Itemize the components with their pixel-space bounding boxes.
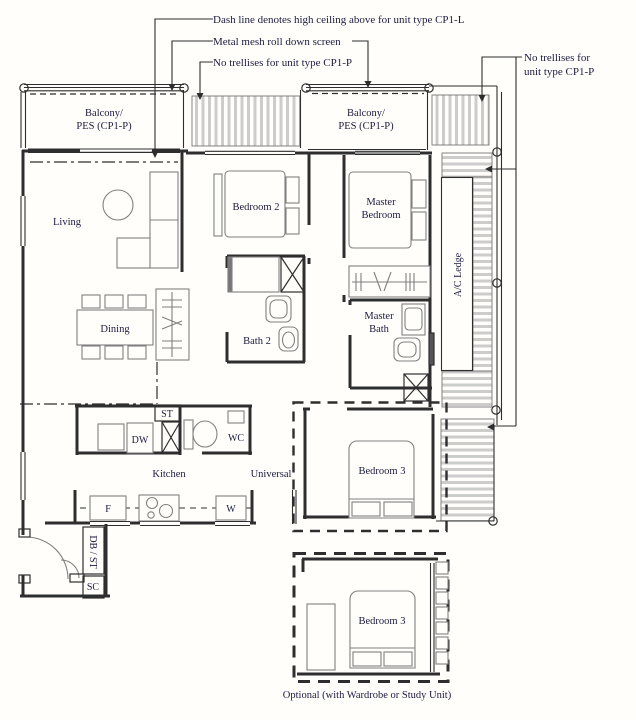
label-kitchen: Kitchen [152,469,186,480]
arrow-high-ceiling [152,151,159,158]
label-shoe-cabinet: SC [87,582,100,593]
label-balcony-left-1: Balcony/ [85,108,123,119]
label-living: Living [53,217,82,228]
label-bedroom3-optional: Bedroom 3 [359,616,406,627]
coffee-table [103,190,133,220]
shaft-bath2 [281,257,304,292]
label-master-bath-2: Bath [369,324,390,335]
note-metal-mesh: Metal mesh roll down screen [213,36,341,48]
label-balcony-right-1: Balcony/ [347,108,385,119]
shaft-kitchen [162,422,180,453]
floor-plan-drawing: Dash line denotes high ceiling above for… [0,0,636,720]
caption-optional: Optional (with Wardrobe or Study Unit) [283,690,452,701]
floor-plan-page: Dash line denotes high ceiling above for… [0,0,636,720]
wc-cistern [184,420,193,449]
note-no-trellises-right-line1: No trellises for [524,52,590,64]
entrance-door-arc [26,537,68,579]
label-master-2: Bedroom [361,210,400,221]
label-ac-ledge: A/C Ledge [453,252,464,297]
label-dining: Dining [100,324,130,335]
label-db-store: DB / ST [87,535,98,568]
bath2-vanity [228,257,279,292]
note-no-trellises-right-line2: unit type CP1-P [524,66,594,78]
metal-mesh-dash-line [30,94,424,95]
shafts-and-boxes [19,257,434,598]
label-bedroom2: Bedroom 2 [233,202,280,213]
label-universal: Universal [251,469,292,480]
note-no-trellises-left: No trellises for unit type CP1-P [213,57,352,69]
label-balcony-right-2: PES (CP1-P) [338,121,394,132]
kitchen-sink [98,424,124,450]
optional-wardrobe-study [307,604,335,670]
label-washer: W [226,504,236,515]
label-master-1: Master [366,197,396,208]
sofa-chaise [117,238,150,268]
label-dishwasher: DW [132,435,149,446]
label-master-bath-1: Master [364,311,394,322]
label-balcony-left-2: PES (CP1-P) [76,121,132,132]
label-wc: WC [228,433,244,444]
note-high-ceiling: Dash line denotes high ceiling above for… [213,14,465,26]
label-bedroom3: Bedroom 3 [359,466,406,477]
label-fridge: F [105,504,111,515]
label-bath2: Bath 2 [243,336,271,347]
stove [139,495,179,521]
label-store: ST [161,409,173,420]
wc-toilet [193,421,217,447]
